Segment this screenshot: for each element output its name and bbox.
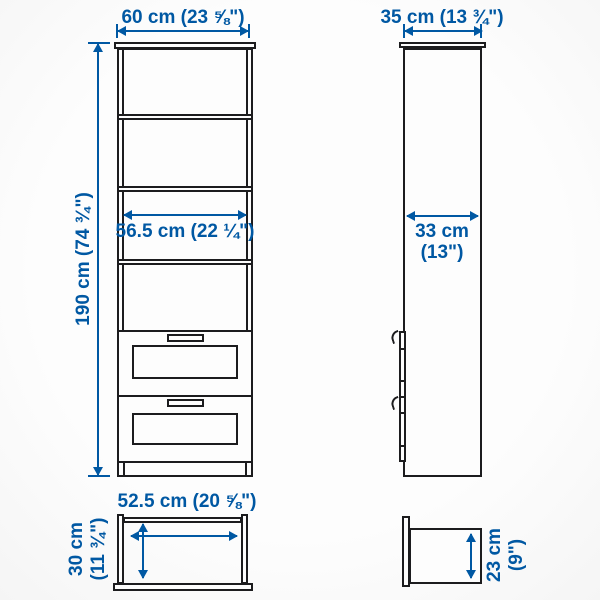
shelf-width-label: 56.5 cm (22 ¼") xyxy=(116,221,255,242)
drawer-inner-height-arrow xyxy=(142,524,144,578)
drawer-base xyxy=(113,583,253,591)
side-inner-depth-arrow xyxy=(407,215,478,217)
front-right-foot-line xyxy=(245,463,247,475)
front-left-foot-line xyxy=(123,463,125,475)
drawer-inner-width-arrow xyxy=(131,535,237,537)
shelf-3 xyxy=(119,259,251,265)
shelf-1 xyxy=(119,114,251,120)
drawer-height-line2: (11 ¾") xyxy=(88,518,110,581)
side-depth-label: 35 cm (13 ¾") xyxy=(380,7,503,28)
drawer-1-panel xyxy=(132,345,238,379)
strip-division xyxy=(400,380,405,382)
strip-division xyxy=(400,445,405,447)
plinth-line xyxy=(119,461,251,463)
drawer-height-line1: 30 cm xyxy=(66,518,88,581)
drawer-2-handle xyxy=(167,399,204,407)
drawer-depth-label: 23 cm (9") xyxy=(484,528,528,582)
side-inner-depth-line2: (13") xyxy=(415,242,469,263)
side-inner-depth-line1: 33 cm xyxy=(415,221,469,242)
front-width-arrow xyxy=(118,30,248,32)
strip-division xyxy=(400,348,405,350)
drawer-1-handle xyxy=(167,334,204,342)
side-depth-arrow xyxy=(405,30,482,32)
drawer-depth-line1: 23 cm xyxy=(484,528,506,582)
front-height-label: 190 cm (74 ¾") xyxy=(73,192,95,326)
drawer-depth-arrow xyxy=(470,534,472,578)
shelf-width-arrow xyxy=(124,214,246,216)
strip-division xyxy=(400,412,405,414)
strip-division xyxy=(400,396,405,398)
drawer-left-post xyxy=(117,514,124,584)
drawer-width-label: 52.5 cm (20 ⅝") xyxy=(118,491,257,512)
side-inner-depth-label: 33 cm (13") xyxy=(415,221,469,263)
drawer-depth-line2: (9") xyxy=(506,528,528,582)
drawer-right-post xyxy=(241,514,248,584)
drawer-height-label: 30 cm (11 ¾") xyxy=(66,518,110,581)
drawer-separator-line xyxy=(119,395,251,397)
front-height-arrow xyxy=(97,44,99,475)
drawer-section-top-line xyxy=(119,330,251,332)
front-width-label: 60 cm (23 ⅝") xyxy=(121,7,244,28)
product-dimensions-diagram: 60 cm (23 ⅝") 190 cm (74 ¾") 56.5 cm (22… xyxy=(0,0,600,600)
drawer-2-panel xyxy=(132,413,238,445)
shelf-2 xyxy=(119,186,251,192)
